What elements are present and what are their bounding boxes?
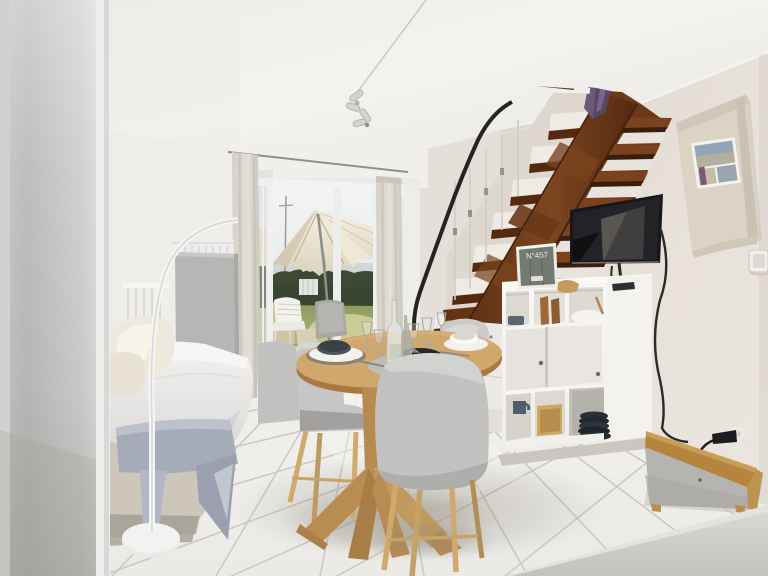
svg-text:N°457: N°457 (526, 250, 549, 261)
